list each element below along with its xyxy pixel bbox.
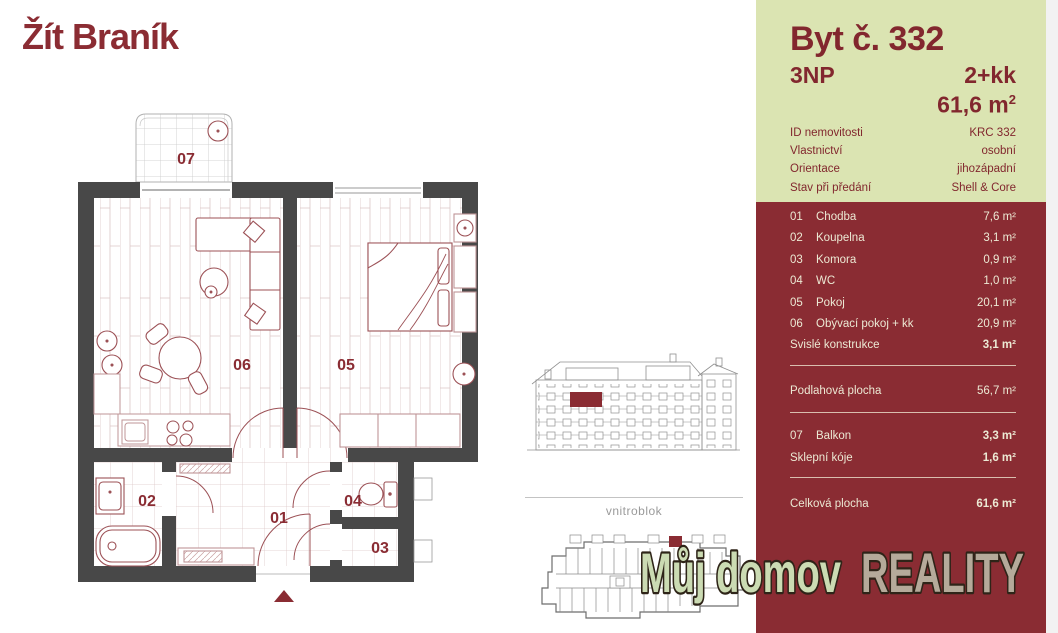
- unit-area: 61,6 m2: [937, 88, 1016, 117]
- building-elevation: [520, 350, 745, 460]
- detail-row: Stav při předáníShell & Core: [790, 179, 1016, 197]
- divider: [790, 477, 1016, 478]
- unit-details: ID nemovitostiKRC 332 Vlastnictvíosobní …: [790, 124, 1016, 197]
- detail-row: Vlastnictvíosobní: [790, 142, 1016, 160]
- construction-row: Svislé konstrukce3,1 m²: [790, 335, 1016, 356]
- room-row: 01Chodba7,6 m²: [790, 207, 1016, 228]
- detail-row: ID nemovitostiKRC 332: [790, 124, 1016, 142]
- divider: [790, 365, 1016, 366]
- plan-room-label-01: 01: [270, 510, 288, 527]
- page-edge: [1046, 0, 1058, 633]
- plan-room-label-05: 05: [337, 357, 355, 374]
- floor-area-row: Podlahová plocha56,7 m²: [790, 381, 1016, 402]
- detail-row: Orientacejihozápadní: [790, 160, 1016, 178]
- plan-room-label-04: 04: [344, 493, 362, 510]
- total-area-row: Celková plocha61,6 m²: [790, 494, 1016, 515]
- unit-layout: 2+kk: [964, 63, 1016, 87]
- plan-room-label-03: 03: [371, 540, 389, 557]
- room-row: 03Komora0,9 m²: [790, 250, 1016, 271]
- room-row: 04WC1,0 m²: [790, 271, 1016, 292]
- divider: [790, 412, 1016, 413]
- unit-highlight-siteplan: [669, 536, 682, 547]
- plan-room-label-02: 02: [138, 493, 156, 510]
- plan-room-label-07: 07: [177, 151, 195, 168]
- balcony-row: 07Balkon3,3 m²: [790, 426, 1016, 447]
- room-row: 02Koupelna3,1 m²: [790, 228, 1016, 249]
- panel-header: Byt č. 332 3NP 2+kk 61,6 m2 ID nemovitos…: [756, 0, 1046, 202]
- unit-info-panel: Byt č. 332 3NP 2+kk 61,6 m2 ID nemovitos…: [756, 0, 1046, 633]
- room-row: 05Pokoj20,1 m²: [790, 293, 1016, 314]
- unit-highlight-elevation: [570, 392, 602, 407]
- developer-logo: Žít Braník: [22, 16, 178, 58]
- site-caption: vnitroblok: [525, 497, 743, 518]
- entrance-arrow-icon: [274, 590, 294, 602]
- room-row: 06Obývací pokoj + kk20,9 m²: [790, 314, 1016, 335]
- balcony-light: [208, 121, 228, 141]
- floor-plan: 07 06 05 01 02 04 03: [60, 100, 500, 620]
- site-plan: [535, 525, 750, 630]
- panel-room-list: 01Chodba7,6 m² 02Koupelna3,1 m² 03Komora…: [756, 202, 1046, 633]
- cellar-row: Sklepní kóje1,6 m²: [790, 448, 1016, 469]
- unit-floor: 3NP: [790, 63, 835, 87]
- unit-title: Byt č. 332: [790, 20, 944, 59]
- plan-room-label-06: 06: [233, 357, 251, 374]
